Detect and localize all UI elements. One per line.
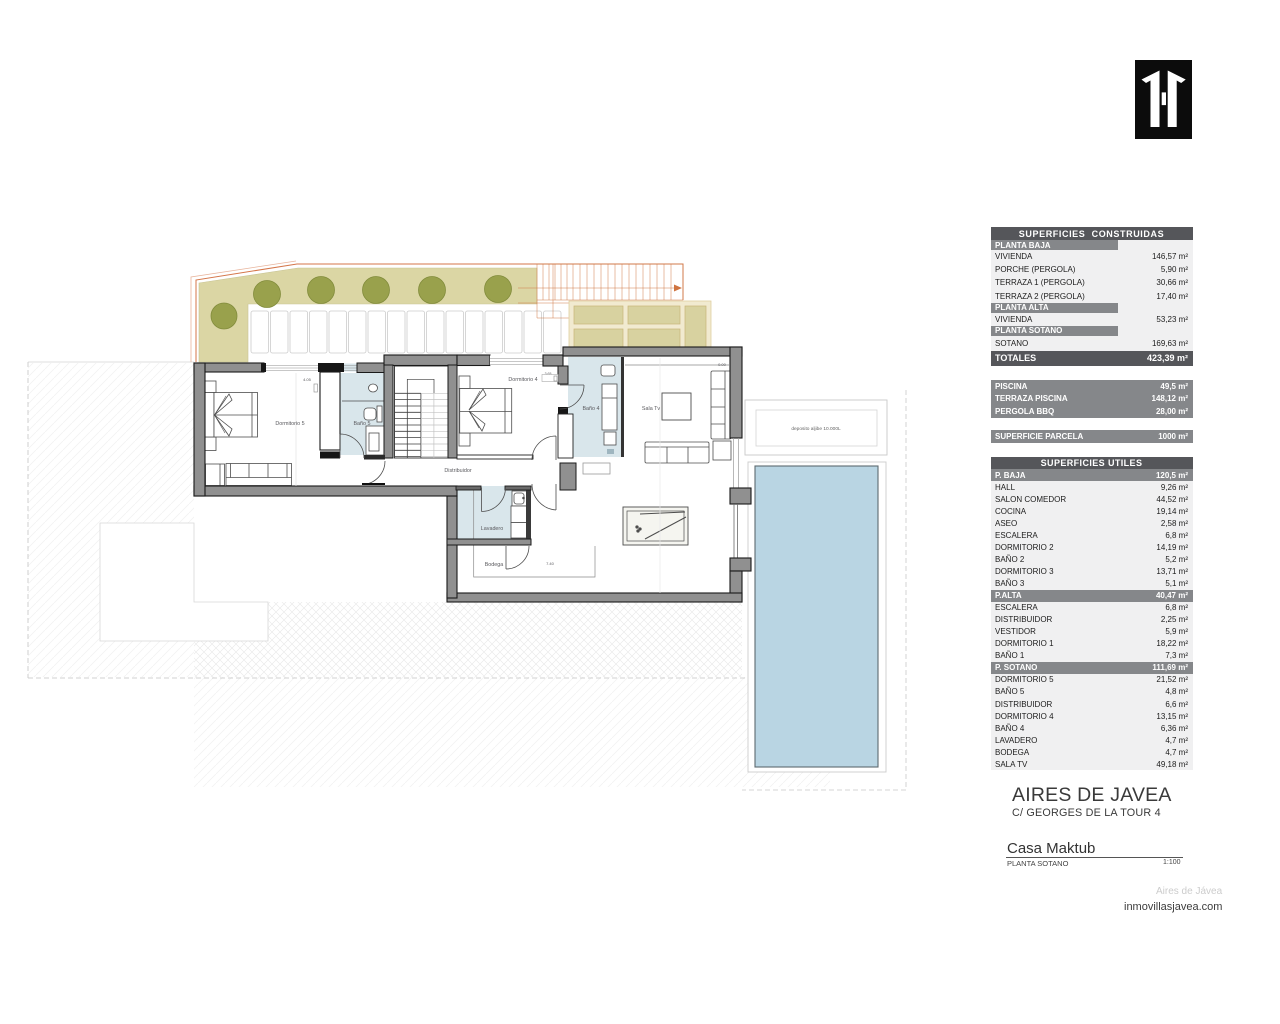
svg-text:deposito aljibe 10.000L: deposito aljibe 10.000L (791, 426, 841, 432)
svg-text:4.05: 4.05 (303, 377, 312, 382)
svg-text:Dormitorio 4: Dormitorio 4 (508, 377, 537, 383)
svg-text:Baño 4: Baño 4 (582, 406, 599, 412)
svg-text:Baño 5: Baño 5 (353, 421, 370, 427)
svg-text:0.00: 0.00 (718, 362, 727, 367)
svg-text:Lavadero: Lavadero (481, 526, 503, 532)
svg-text:7.40: 7.40 (546, 561, 555, 566)
svg-text:Bodega: Bodega (485, 562, 504, 568)
svg-text:Dormitorio 5: Dormitorio 5 (275, 421, 304, 427)
svg-text:Sala Tv: Sala Tv (642, 406, 660, 412)
svg-text:Distribuidor: Distribuidor (444, 468, 471, 474)
